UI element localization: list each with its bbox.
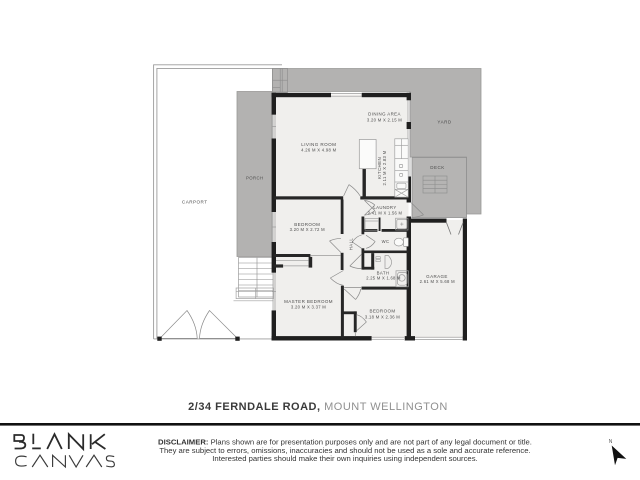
svg-text:3.18 M X 2.36 M: 3.18 M X 2.36 M [365,314,400,319]
svg-text:2.25 M X 1.68 M: 2.25 M X 1.68 M [366,275,401,280]
svg-text:3.20 M X 2.72 M: 3.20 M X 2.72 M [290,227,325,232]
svg-text:3.20 M X 2.15 M: 3.20 M X 2.15 M [367,117,402,122]
svg-text:HALL: HALL [348,238,353,251]
svg-text:PORCH: PORCH [246,175,264,180]
svg-text:BEDROOM: BEDROOM [369,309,395,314]
svg-text:2.41 M X 1.56 M: 2.41 M X 1.56 M [368,210,403,215]
svg-text:2.11 M X 2.83 M: 2.11 M X 2.83 M [382,150,387,185]
svg-text:YARD: YARD [437,120,451,125]
svg-text:DECK: DECK [430,165,445,170]
svg-text:WC: WC [382,239,390,244]
svg-text:CARPORT: CARPORT [182,199,208,204]
svg-text:N: N [609,439,613,445]
svg-text:LAUNDRY: LAUNDRY [373,205,396,210]
svg-text:DINING AREA: DINING AREA [368,112,401,117]
svg-text:MASTER BEDROOM: MASTER BEDROOM [284,299,333,304]
svg-text:3.20 M X 3.37 M: 3.20 M X 3.37 M [291,305,326,310]
svg-text:Interested parties should make: Interested parties should make their own… [212,454,477,463]
svg-text:2/34 FERNDALE ROAD, MOUNT WELL: 2/34 FERNDALE ROAD, MOUNT WELLINGTON [188,401,448,413]
svg-text:2.61 M X 5.68 M: 2.61 M X 5.68 M [420,279,455,284]
svg-text:BEDROOM: BEDROOM [294,222,320,227]
svg-text:LIVING ROOM: LIVING ROOM [301,142,336,147]
svg-text:4.26 M X 4.98 M: 4.26 M X 4.98 M [301,148,336,153]
